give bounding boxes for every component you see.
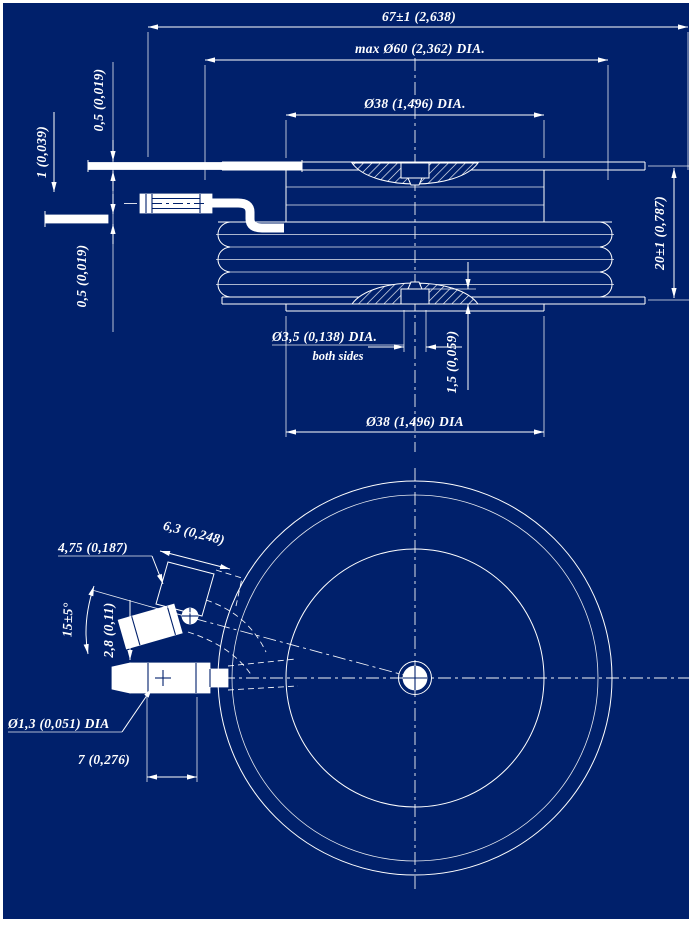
upper-lead-thickness-label: 0,5 (0,019) bbox=[91, 69, 106, 132]
technical-drawing: 67±1 (2,638) max Ø60 (2,362) DIA. Ø38 (1… bbox=[0, 0, 700, 940]
max-diameter-label: max Ø60 (2,362) DIA. bbox=[355, 41, 485, 56]
top-pole-diameter-label: Ø38 (1,496) DIA. bbox=[363, 96, 466, 111]
drawing-sheet bbox=[3, 3, 689, 919]
terminal-length-label: 7 (0,276) bbox=[78, 752, 130, 767]
overall-width-label: 67±1 (2,638) bbox=[382, 9, 456, 24]
terminal-width-label: 4,75 (0,187) bbox=[57, 540, 128, 555]
terminal-offset-label: 2,8 (0,11) bbox=[101, 602, 116, 658]
recess-depth-label: 1,5 (0,059) bbox=[444, 331, 459, 394]
body-height-label: 20±1 (0,787) bbox=[652, 196, 667, 271]
bottom-pole-diameter-label: Ø38 (1,496) DIA bbox=[365, 414, 464, 429]
wire-diameter-label: Ø1,3 (0,051) DIA bbox=[7, 716, 110, 731]
gate-hole-diameter-label: Ø3,5 (0,138) DIA. bbox=[271, 329, 377, 344]
lower-lead-thickness-label: 0,5 (0,019) bbox=[74, 245, 89, 308]
lead-angle-label: 15±5° bbox=[59, 602, 75, 637]
center-gate-hole bbox=[399, 662, 432, 695]
lead-spacing-label: 1 (0,039) bbox=[34, 126, 49, 178]
gate-hole-note-label: both sides bbox=[312, 349, 363, 363]
